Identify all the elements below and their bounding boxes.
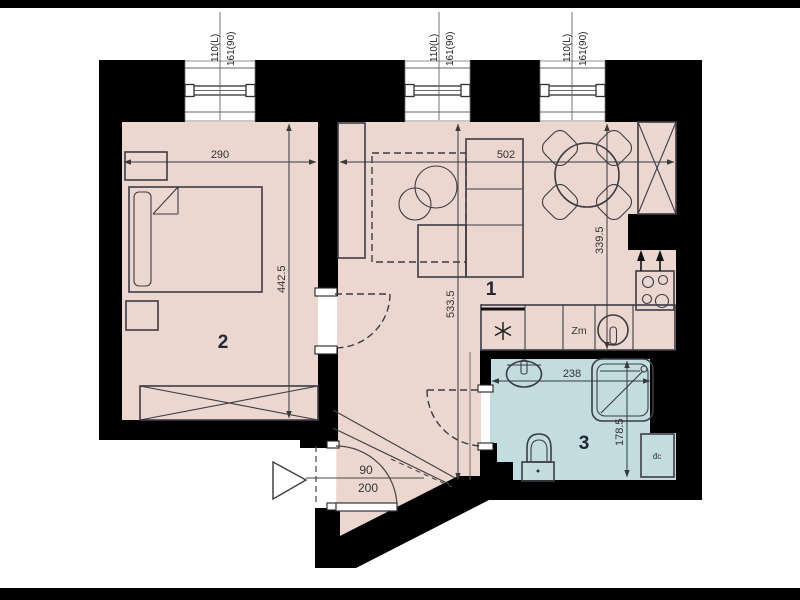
wall-right [676,60,702,500]
wall-top-1 [99,60,185,122]
wall-left [99,122,122,440]
window-dim-label: 161(90) [445,32,456,66]
dishwasher-label: Zm [571,325,586,337]
room-label-1: 1 [486,279,497,300]
window-dim-label: 161(90) [226,32,237,66]
window-dim-label: 110(L) [562,34,573,62]
floor-plan-page: 110(L) 161(90) 110(L) 161(90) 110(L) 161… [0,0,800,600]
dim-label: 178.5 [614,418,626,446]
letterbox-top [0,0,800,8]
door-jamb [327,441,339,448]
window-jamb [405,85,414,97]
window-jamb [461,85,470,97]
toilet-button [537,470,540,473]
door-jamb [478,443,493,450]
window-dim-label: 161(90) [578,32,589,66]
entry-direction-triangle [273,462,306,499]
dim-label: 290 [211,149,229,161]
door-jamb [315,346,337,354]
letterbox-bottom [0,588,800,600]
dim-label: 533.5 [445,290,457,318]
wall-top-3 [470,60,540,122]
window-jamb [185,85,194,97]
wall-bath-north [480,350,676,359]
water-heater-label: đc [653,452,661,461]
wall-bath-block [650,350,676,433]
window-jamb [540,85,549,97]
door-jamb [478,385,493,392]
window-1: 110(L) 161(90) [185,12,255,121]
door-jamb [315,288,337,296]
room-label-2: 2 [218,332,229,353]
dim-label: 442.5 [276,265,288,293]
wall-bottom [452,480,702,500]
floor-plan-drawing: 110(L) 161(90) 110(L) 161(90) 110(L) 161… [0,0,800,600]
wall-center-mid [318,348,338,448]
dim-label: 339.5 [594,226,606,254]
wall-duct [628,214,676,250]
window-dim-label: 110(L) [210,34,221,62]
entry-door-width: 90 [359,463,373,477]
window-jamb [596,85,605,97]
room-label-3: 3 [579,433,590,454]
window-3: 110(L) 161(90) [540,12,605,121]
dim-label: 502 [497,149,515,161]
window-2: 110(L) 161(90) [405,12,470,121]
dim-label: 238 [563,368,581,380]
entry-door-height: 200 [358,481,378,495]
window-jamb [246,85,255,97]
window-dim-label: 110(L) [429,34,440,62]
entry-door-leaf [336,503,397,511]
wall-top-2 [255,60,405,122]
wall-center-upper [318,122,338,296]
wall-bath-step [496,462,513,482]
